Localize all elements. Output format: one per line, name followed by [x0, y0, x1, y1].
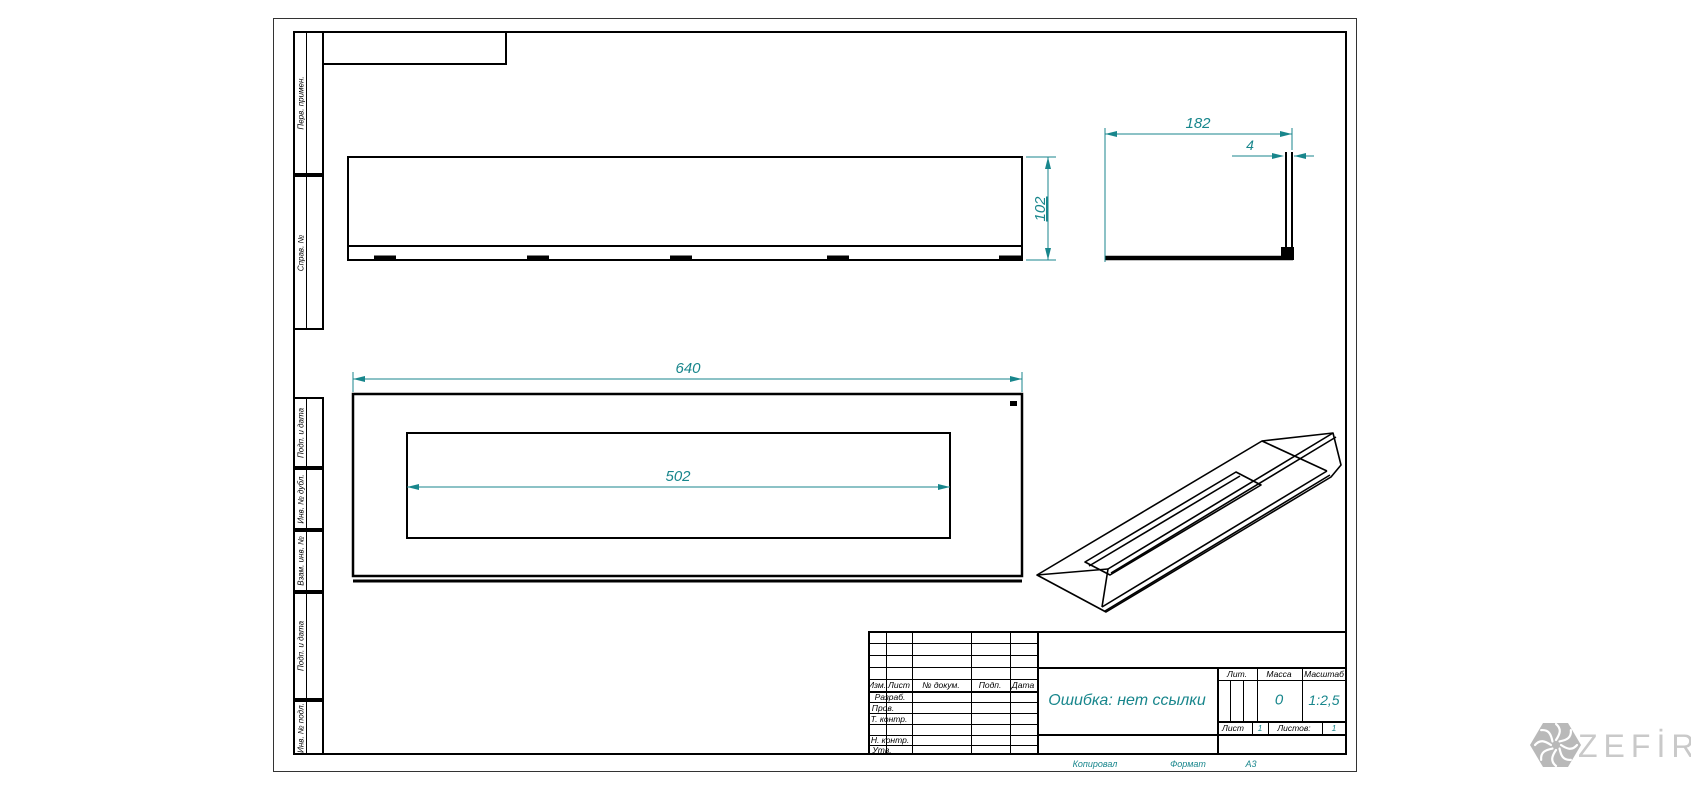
isometric-view — [1037, 433, 1341, 612]
plan-corner-mark — [1010, 401, 1017, 406]
logo-text: ZEFİRE — [1578, 728, 1691, 764]
dim-640-label: 640 — [675, 360, 701, 377]
dim-182: 182 — [1105, 115, 1292, 262]
front-view — [348, 157, 1022, 260]
dim-502-label: 502 — [665, 468, 691, 485]
dim-182-label: 182 — [1185, 115, 1211, 132]
dim-102-label: 102 — [1032, 196, 1049, 222]
side-view — [1105, 152, 1294, 260]
dim-4-label: 4 — [1246, 137, 1254, 153]
dim-502: 502 — [407, 468, 950, 490]
dim-640: 640 — [353, 360, 1022, 392]
logo-hexagon — [1530, 723, 1581, 767]
screenshot-root: { "dims": { "total_width": "182", "flang… — [0, 0, 1691, 810]
dim-4: 4 — [1232, 137, 1314, 159]
zefire-logo: ZEFİRE — [1530, 723, 1691, 767]
drawing-canvas: 102 182 4 640 — [0, 0, 1691, 810]
dim-102: 102 — [1026, 157, 1056, 260]
